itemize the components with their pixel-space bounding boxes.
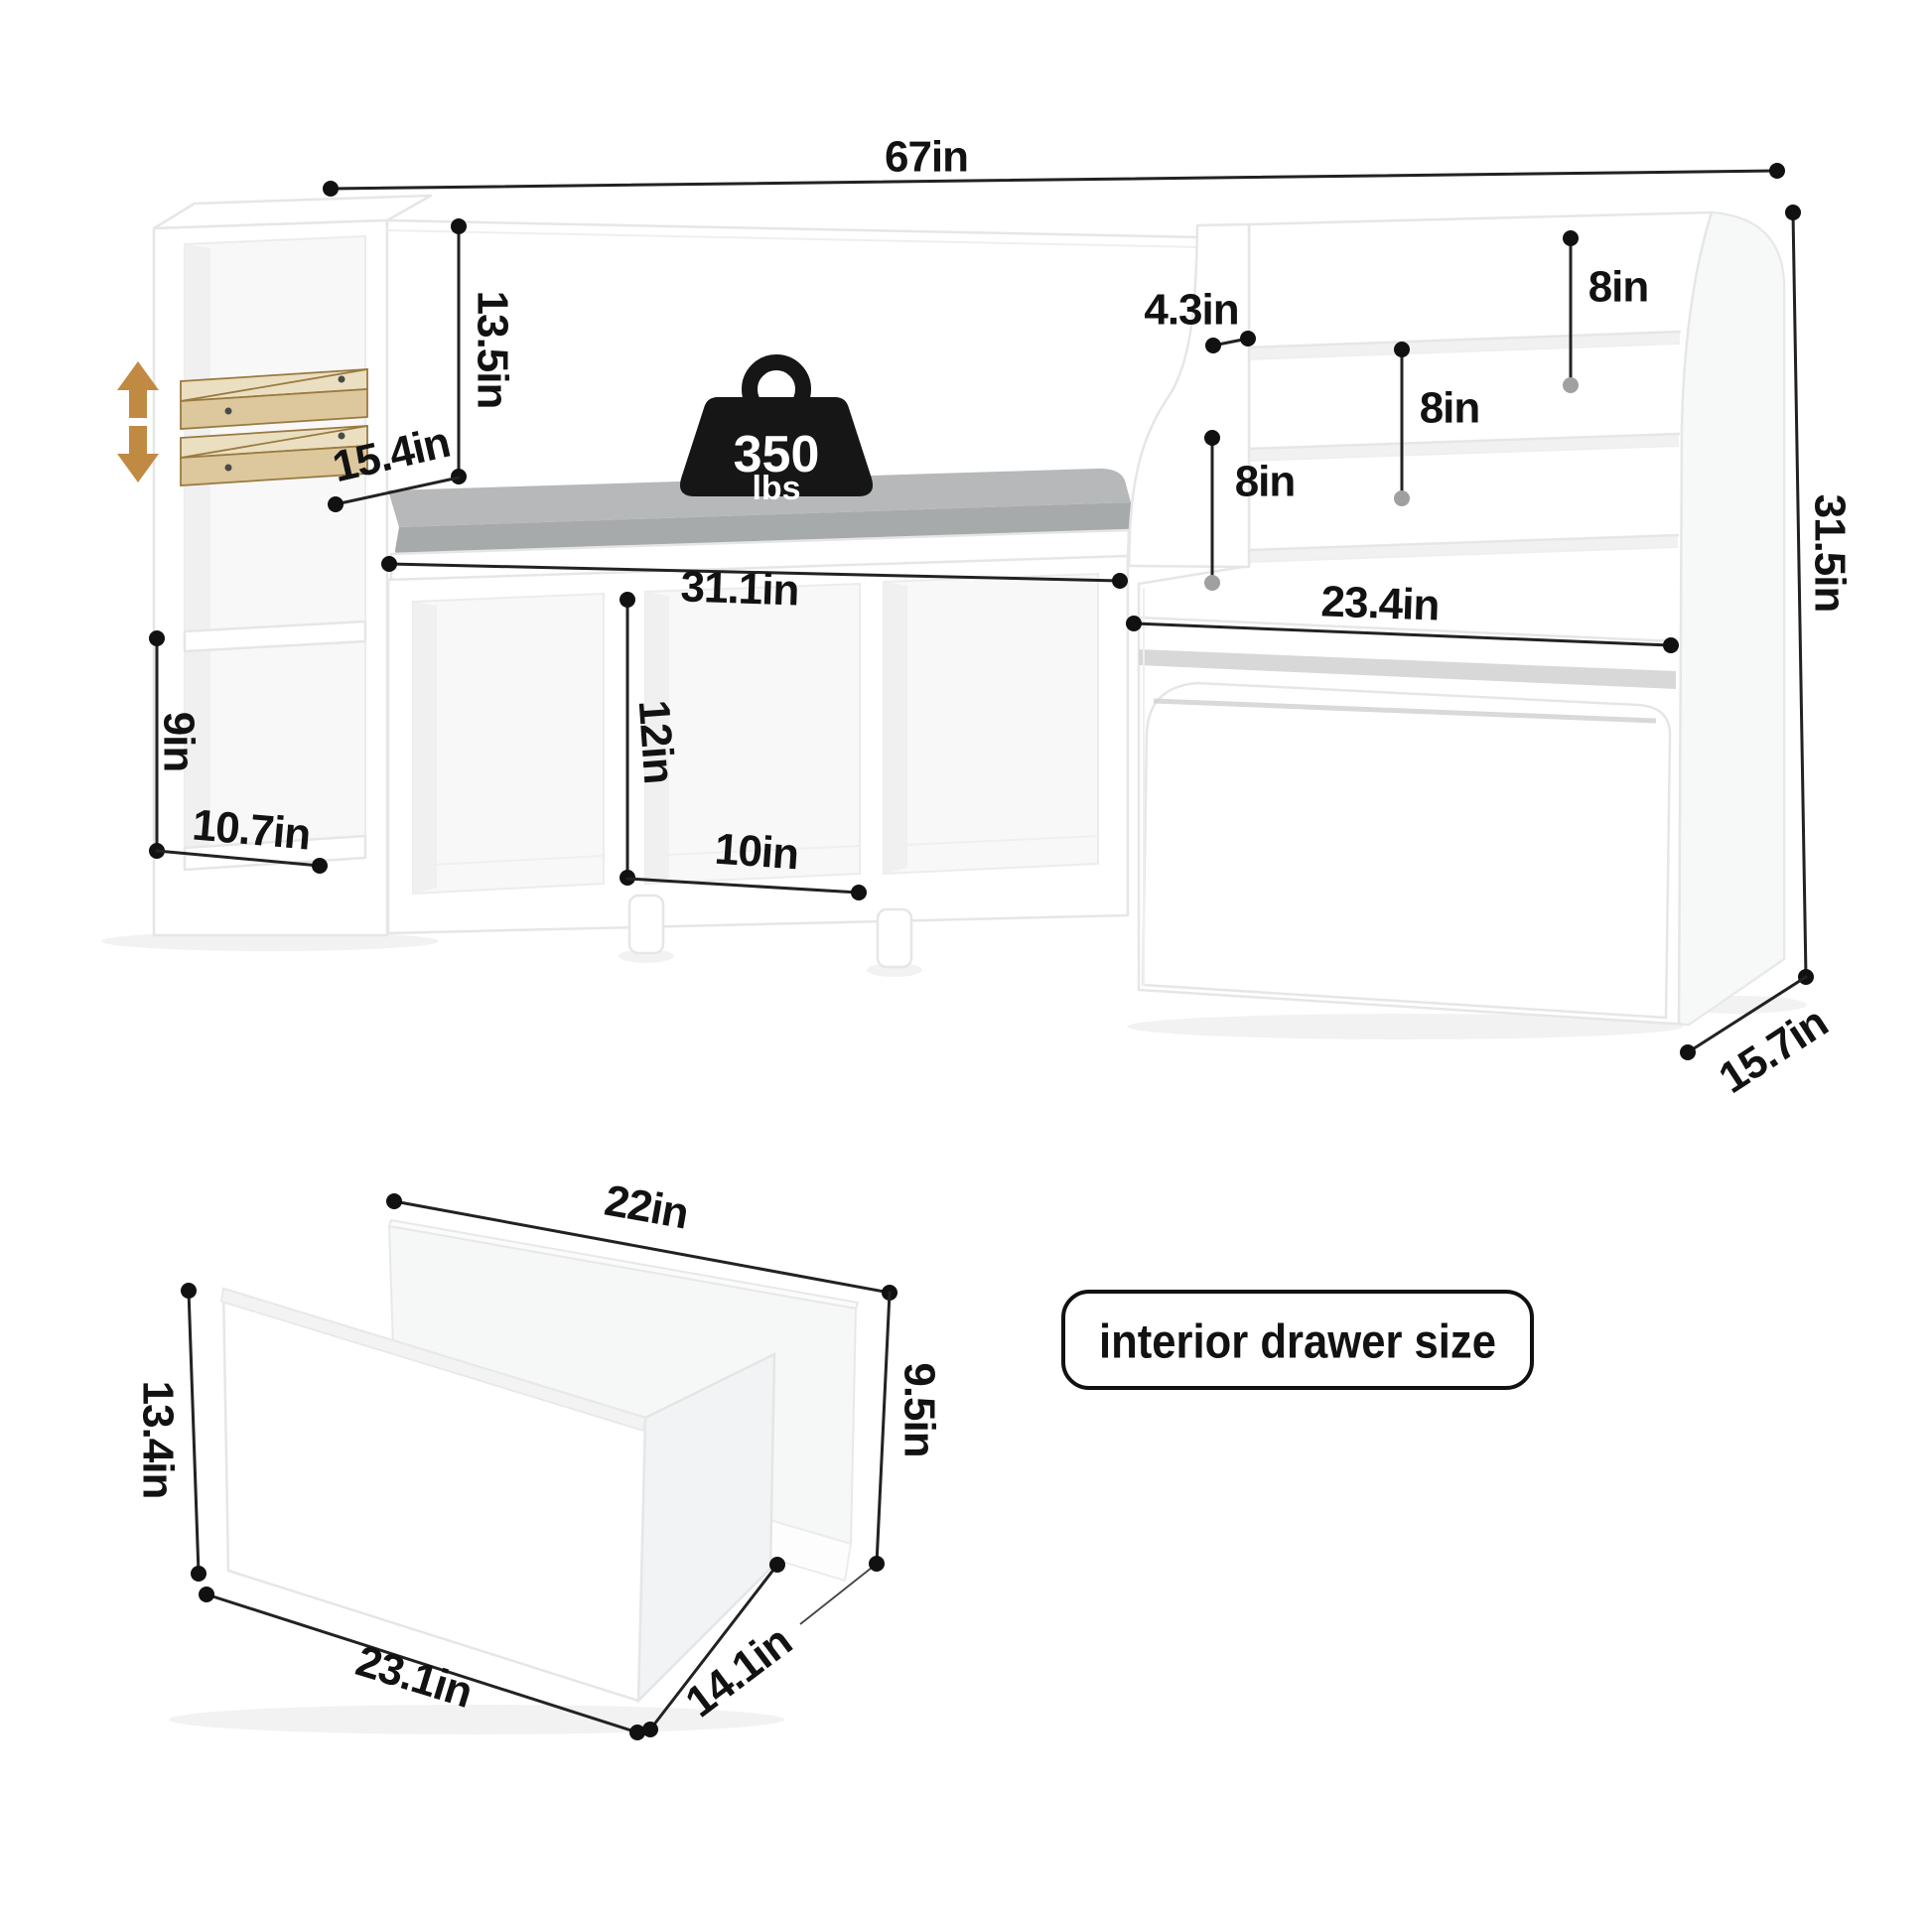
dim-tier-gap-middle-label: 8in <box>1420 384 1480 433</box>
dim-overall-depth-label: 15.7in <box>1711 998 1836 1103</box>
dim-overall-width-label: 67in <box>885 133 968 182</box>
callout-label: interior drawer size <box>1099 1316 1496 1369</box>
weight-unit: lbs <box>752 470 800 507</box>
dim-tier-gap-top-label: 8in <box>1588 263 1649 312</box>
dim-drawer-interior-height-label: 9.5in <box>896 1362 944 1456</box>
dim-cubby-width-label: 10in <box>713 825 799 880</box>
left-unit-interior <box>185 236 365 852</box>
arrow-down-icon <box>117 426 159 483</box>
arrow-up-icon <box>117 361 159 418</box>
dim-toybox-width-label: 23.4in <box>1320 577 1440 629</box>
product-dimension-diagram: 350 lbs 67in 13.5in 15.4in 31.1in <box>0 0 1932 1932</box>
side-panel-outer <box>1679 212 1784 1025</box>
dim-overall-height: 31.5in <box>1785 205 1855 985</box>
dim-bench-width-label: 31.1in <box>680 562 799 615</box>
dim-side-shelf-depth-label: 10.7in <box>191 800 313 859</box>
dim-ledge-depth-label: 4.3in <box>1144 286 1238 335</box>
interior-drawer-size-callout: interior drawer size <box>1063 1292 1532 1388</box>
screw-dot <box>339 376 345 383</box>
toybox-drawer-front <box>1143 683 1670 1018</box>
dim-tier-gap-bottom-label: 8in <box>1235 458 1296 506</box>
cubby-opening <box>413 594 604 894</box>
dim-cubby-height-label: 12in <box>629 698 684 784</box>
bench-leg <box>629 896 663 953</box>
dim-overall-width: 67in <box>323 133 1785 198</box>
dim-overall-height-label: 31.5in <box>1806 494 1855 613</box>
dim-back-height-label: 13.5in <box>469 291 517 409</box>
screw-dot <box>339 433 345 440</box>
bench-leg <box>878 909 911 967</box>
main-unit: 350 lbs <box>101 196 1807 1039</box>
cubby-opening <box>884 574 1098 874</box>
shelf-adjust-arrows <box>117 361 159 483</box>
dim-side-shelf-height-label: 9in <box>155 712 204 772</box>
bench-cubbies <box>388 556 1128 967</box>
screw-dot <box>225 408 232 415</box>
dim-drawer-interior-width-label: 22in <box>601 1176 691 1239</box>
dim-drawer-front-height: 13.4in <box>134 1283 207 1582</box>
drawer-box: 22in 13.4in 9.5in 23.1in 14.1in <box>134 1176 944 1740</box>
screw-dot <box>225 465 232 472</box>
dim-drawer-front-height-label: 13.4in <box>134 1381 183 1499</box>
